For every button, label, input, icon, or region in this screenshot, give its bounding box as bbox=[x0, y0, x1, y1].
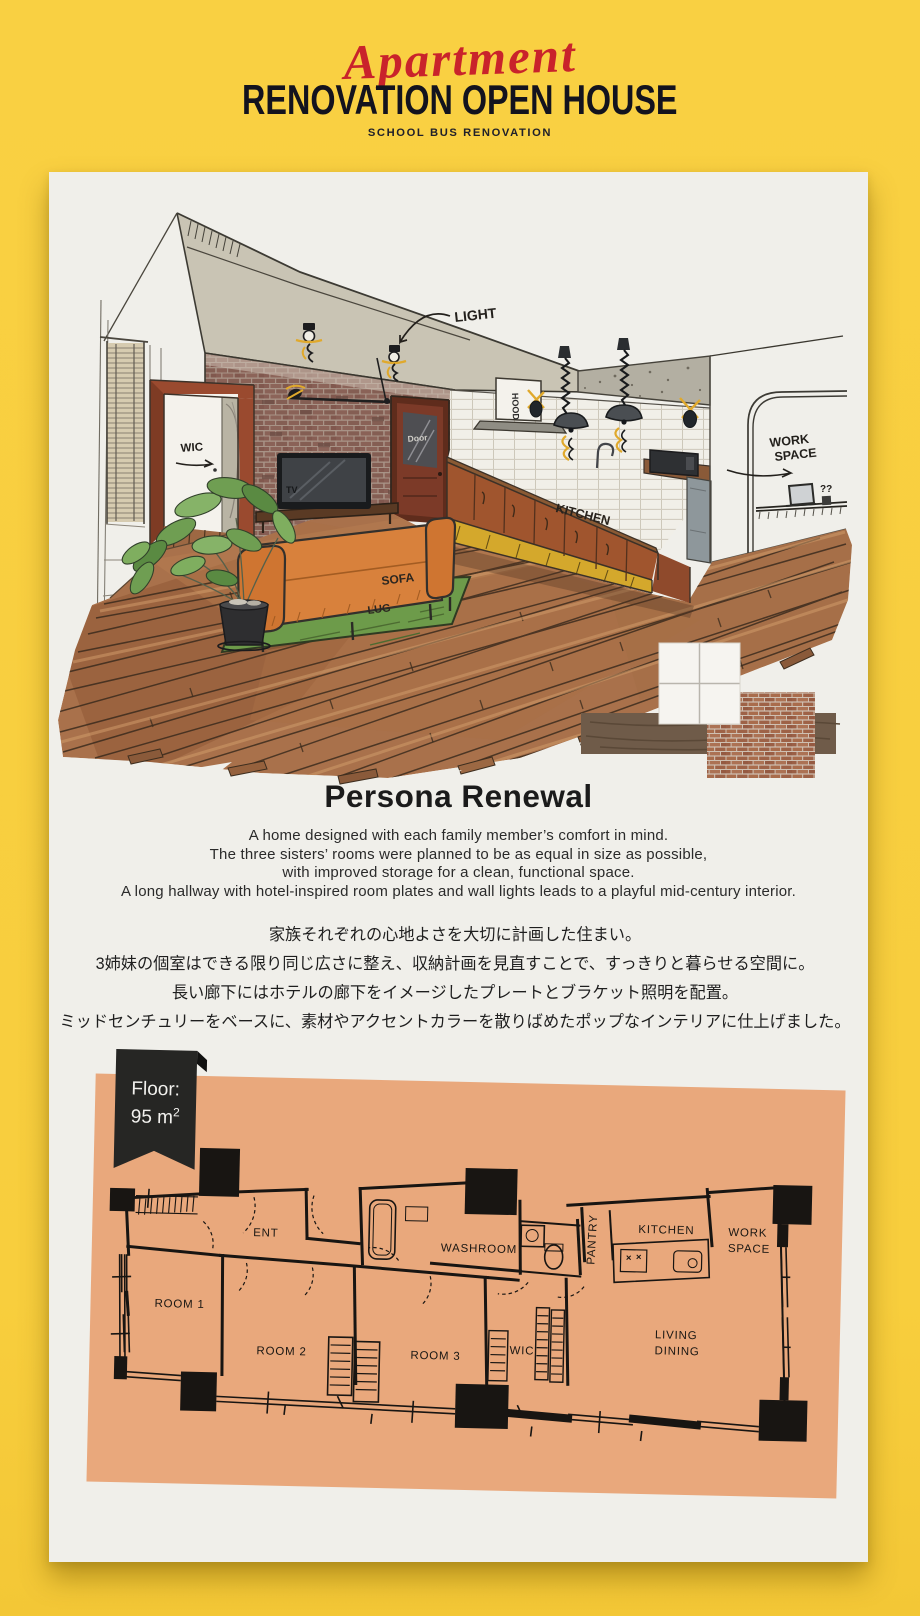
svg-text:Floor:: Floor: bbox=[131, 1078, 180, 1100]
svg-text:LIGHT: LIGHT bbox=[454, 305, 498, 325]
svg-text:KITCHEN: KITCHEN bbox=[638, 1224, 694, 1237]
svg-text:DINING: DINING bbox=[654, 1345, 699, 1358]
svg-text:ROOM 3: ROOM 3 bbox=[410, 1350, 460, 1363]
svg-text:ROOM 1: ROOM 1 bbox=[154, 1298, 204, 1311]
svg-text:WASHROOM: WASHROOM bbox=[441, 1242, 518, 1256]
svg-text:TV: TV bbox=[286, 485, 298, 495]
svg-text:ENT: ENT bbox=[253, 1227, 279, 1240]
svg-text:WIC: WIC bbox=[180, 441, 203, 455]
svg-text:ROOM 2: ROOM 2 bbox=[256, 1345, 306, 1358]
svg-text:SPACE: SPACE bbox=[728, 1243, 770, 1256]
svg-text:95 m2: 95 m2 bbox=[131, 1104, 181, 1128]
svg-text:??: ?? bbox=[820, 484, 832, 495]
svg-text:SPACE: SPACE bbox=[774, 446, 817, 464]
svg-text:WIC: WIC bbox=[509, 1345, 534, 1358]
svg-text:WORK: WORK bbox=[728, 1227, 767, 1240]
svg-text:Door: Door bbox=[407, 432, 428, 444]
svg-text:LIVING: LIVING bbox=[655, 1329, 698, 1342]
svg-text:HOOD: HOOD bbox=[510, 393, 521, 421]
